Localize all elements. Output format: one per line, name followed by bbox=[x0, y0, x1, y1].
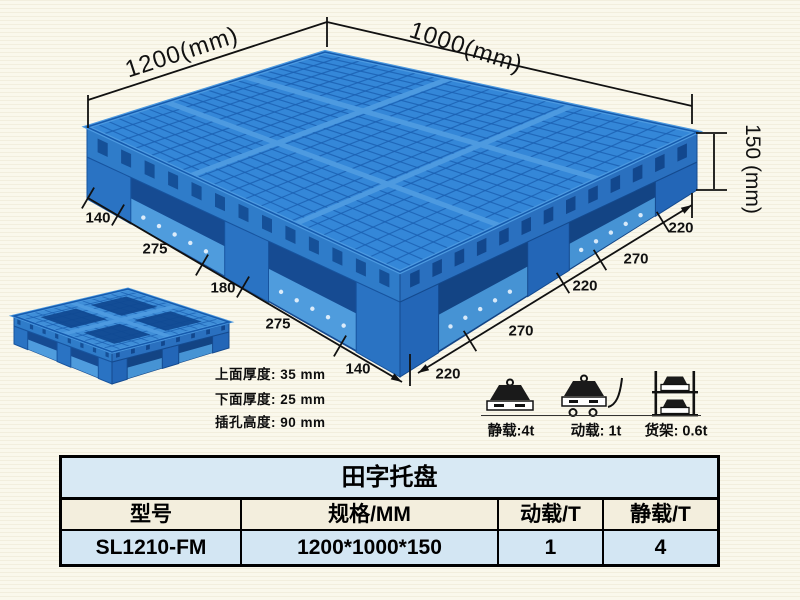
rack-load-label: 货架: 0.6t bbox=[645, 420, 708, 441]
dynamic-load-label: 动载: 1t bbox=[571, 420, 622, 441]
header-size: 规格/MM bbox=[242, 500, 499, 531]
static-load-icon bbox=[482, 378, 538, 420]
cell-model: SL1210-FM bbox=[62, 531, 242, 564]
fork-height-spec: 插孔高度: 90 mm bbox=[215, 411, 326, 431]
left-segment-label: 275 bbox=[142, 241, 167, 258]
header-static-load: 静载/T bbox=[604, 500, 717, 531]
left-segment-label: 140 bbox=[345, 361, 370, 378]
icon-ground-line bbox=[481, 415, 701, 416]
left-segment-label: 275 bbox=[265, 316, 290, 333]
dim-height-label: 150 (mm) bbox=[740, 124, 764, 214]
cell-static-load: 4 bbox=[604, 531, 717, 564]
table-row: SL1210-FM 1200*1000*150 1 4 bbox=[62, 531, 717, 564]
spec-table: 田字托盘 型号 规格/MM 动载/T 静载/T SL1210-FM 1200*1… bbox=[59, 455, 720, 567]
left-segment-label: 180 bbox=[210, 280, 235, 297]
static-load-label: 静载:4t bbox=[488, 420, 535, 441]
table-title: 田字托盘 bbox=[62, 458, 717, 500]
top-thickness-spec: 上面厚度: 35 mm bbox=[215, 363, 326, 383]
small-pallet-photo bbox=[14, 289, 229, 384]
left-segment-label: 140 bbox=[85, 210, 110, 227]
header-dynamic-load: 动载/T bbox=[499, 500, 604, 531]
header-model: 型号 bbox=[62, 500, 242, 531]
right-segment-label: 220 bbox=[572, 278, 597, 295]
table-header-row: 型号 规格/MM 动载/T 静载/T bbox=[62, 500, 717, 531]
right-segment-label: 270 bbox=[508, 323, 533, 340]
cell-size: 1200*1000*150 bbox=[242, 531, 499, 564]
bottom-thickness-spec: 下面厚度: 25 mm bbox=[215, 388, 326, 408]
right-segment-label: 220 bbox=[668, 220, 693, 237]
right-segment-label: 270 bbox=[623, 251, 648, 268]
cell-dynamic-load: 1 bbox=[499, 531, 604, 564]
pallet-datasheet: 1200(mm) 1000(mm) 150 (mm) 140 275 180 2… bbox=[0, 0, 800, 600]
right-segment-label: 220 bbox=[435, 366, 460, 383]
